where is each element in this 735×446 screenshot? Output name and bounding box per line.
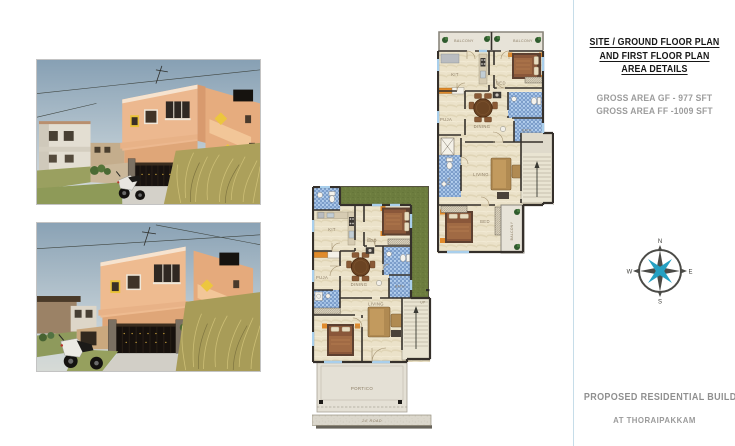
project-location: AT THORAIPAKKAM — [576, 415, 733, 425]
photo-1-scene — [37, 60, 260, 204]
title-block: SITE / GROUND FLOOR PLAN AND FIRST FLOOR… — [578, 36, 731, 77]
ff-bed-top — [508, 53, 544, 84]
compass-drawing: N E S W — [626, 236, 694, 304]
presentation-board: PORTICO 24' ROAD BATH — [0, 0, 735, 446]
ground-floor-plan: PORTICO 24' ROAD BATH — [312, 186, 433, 429]
road-label: 24' ROAD — [361, 419, 382, 423]
living-label: LIVING — [368, 302, 384, 307]
project-location-text: AT THORAIPAKKAM — [582, 415, 726, 425]
compass-w: W — [627, 269, 633, 275]
ff-stairs — [521, 133, 553, 203]
balcony-right-label: BALCONY — [513, 39, 533, 43]
area-details: GROSS AREA GF - 977 SFT GROSS AREA FF -1… — [578, 92, 731, 118]
balcony-left-label: BALCONY — [454, 39, 474, 43]
title-line-1: SITE / GROUND FLOOR PLAN — [587, 36, 722, 50]
photo-building-view-2 — [36, 222, 261, 372]
living-label: LIVING — [473, 172, 489, 177]
kit-label: KIT — [328, 227, 336, 232]
kit-label: KIT — [451, 72, 459, 77]
project-title-text: PROPOSED RESIDENTIAL BUILDING — [584, 392, 725, 403]
ground-floor-drawing: PORTICO 24' ROAD BATH — [312, 186, 433, 429]
bath-label: BATH — [522, 129, 532, 133]
balcony-side-label: BALCONY — [510, 221, 514, 240]
compass-s: S — [658, 300, 662, 305]
project-title: PROPOSED RESIDENTIAL BUILDING — [576, 392, 733, 403]
portico-label: PORTICO — [351, 386, 374, 391]
title-line-3: AREA DETAILS — [587, 63, 722, 77]
gf-portico: PORTICO — [317, 362, 407, 412]
garden-tap — [426, 289, 429, 291]
puja-label: PUJA — [440, 117, 452, 122]
compass-e: E — [688, 269, 692, 275]
ff-shaft — [441, 138, 454, 155]
dining-label: DINING — [351, 282, 368, 287]
gross-area-ff: GROSS AREA FF -1009 SFT — [586, 105, 724, 118]
photo-2-scene — [37, 223, 260, 371]
ff-balconies: BALCONY BALCONY — [439, 32, 544, 51]
compass-n: N — [658, 239, 662, 245]
east-arrow-icon — [681, 269, 687, 274]
bed-top-label: BED — [496, 81, 506, 86]
up-label: UP — [420, 301, 425, 305]
gf-stairs: UP — [402, 298, 430, 360]
gross-area-gf: GROSS AREA GF - 977 SFT — [586, 92, 724, 105]
photo-building-view-1 — [36, 59, 261, 205]
gf-puja-shelf — [313, 252, 340, 259]
puja-label: PUJA — [316, 275, 328, 280]
first-floor-drawing: BALCONY BALCONY BATH TOIL — [437, 31, 554, 255]
toil-label: TOIL — [447, 177, 451, 186]
bath-label: BATH — [395, 285, 405, 289]
bed-bottom-label: BED — [480, 219, 490, 224]
title-line-2: AND FIRST FLOOR PLAN — [587, 50, 722, 64]
gf-road: 24' ROAD — [312, 415, 432, 429]
compass-rose: N E S W — [626, 236, 694, 304]
panel-divider — [573, 0, 574, 446]
west-arrow-icon — [633, 269, 639, 274]
first-floor-plan: BALCONY BALCONY BATH TOIL — [437, 31, 554, 255]
ff-side-balcony: BALCONY — [501, 205, 524, 253]
gf-bed-top — [381, 206, 411, 236]
bed-top-label: BED — [367, 238, 377, 243]
dining-label: DINING — [474, 124, 491, 129]
